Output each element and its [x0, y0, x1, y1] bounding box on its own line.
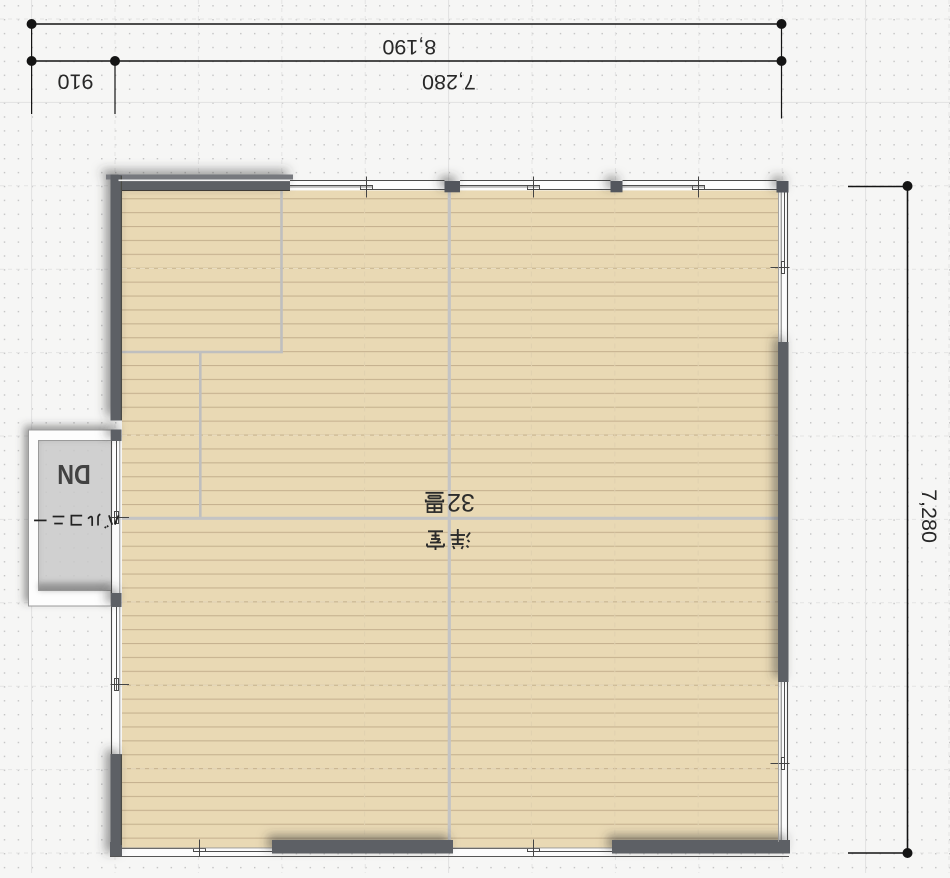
svg-text:8,190: 8,190: [382, 35, 436, 59]
svg-text:7,280: 7,280: [422, 70, 476, 94]
svg-text:910: 910: [58, 70, 94, 94]
svg-text:7,280: 7,280: [917, 489, 941, 543]
svg-text:DN: DN: [57, 459, 91, 490]
svg-text:32: 32: [447, 488, 475, 516]
